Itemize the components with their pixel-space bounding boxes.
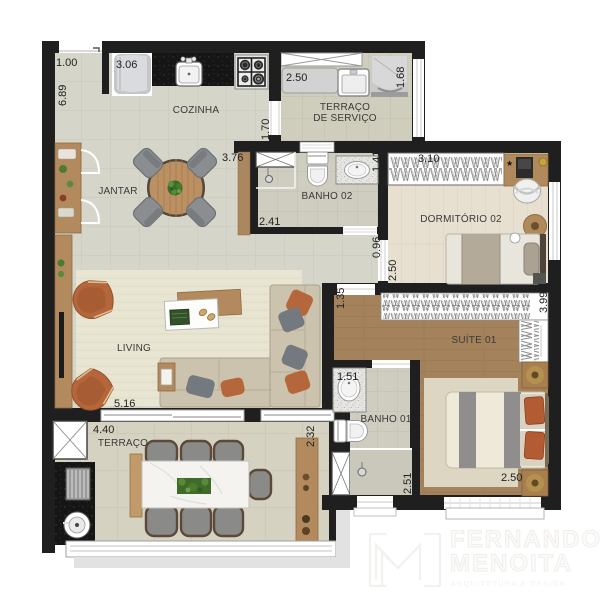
svg-text:DE SERVIÇO: DE SERVIÇO	[313, 113, 377, 124]
svg-text:1.35: 1.35	[335, 288, 347, 309]
svg-text:MENOITA: MENOITA	[450, 550, 573, 577]
svg-text:2.50: 2.50	[387, 260, 399, 281]
svg-text:3.06: 3.06	[116, 59, 137, 71]
svg-text:2.41: 2.41	[259, 216, 280, 228]
svg-text:DORMITÓRIO 02: DORMITÓRIO 02	[420, 212, 502, 225]
svg-text:6.89: 6.89	[57, 85, 69, 106]
svg-text:COZINHA: COZINHA	[173, 105, 220, 116]
svg-text:2.50: 2.50	[501, 472, 522, 484]
svg-text:LIVING: LIVING	[117, 343, 151, 354]
svg-text:BANHO 01: BANHO 01	[360, 414, 411, 425]
svg-text:BANHO 02: BANHO 02	[301, 191, 352, 202]
svg-text:2.50: 2.50	[286, 72, 307, 84]
svg-text:ARQUITETURA E DESIGN: ARQUITETURA E DESIGN	[451, 581, 566, 588]
svg-text:1.00: 1.00	[56, 57, 77, 69]
svg-text:0.96: 0.96	[371, 237, 383, 258]
svg-text:4.40: 4.40	[93, 424, 114, 436]
svg-text:1.70: 1.70	[260, 119, 272, 140]
svg-text:TERRAÇO: TERRAÇO	[98, 438, 148, 449]
svg-text:1.51: 1.51	[337, 371, 358, 383]
svg-text:2.51: 2.51	[402, 473, 414, 494]
svg-text:FERNANDO: FERNANDO	[450, 526, 602, 553]
svg-text:SUÍTE 01: SUÍTE 01	[452, 333, 497, 346]
svg-text:★: ★	[506, 159, 513, 168]
svg-text:TERRAÇO: TERRAÇO	[320, 102, 370, 113]
svg-text:1.68: 1.68	[395, 67, 407, 88]
svg-text:3.99: 3.99	[538, 292, 550, 313]
svg-text:1.41: 1.41	[371, 151, 383, 172]
svg-text:3.10: 3.10	[418, 153, 439, 165]
svg-text:JANTAR: JANTAR	[98, 186, 137, 197]
svg-text:5.16: 5.16	[114, 398, 135, 410]
svg-text:2.32: 2.32	[305, 426, 317, 447]
svg-text:3.76: 3.76	[222, 152, 243, 164]
